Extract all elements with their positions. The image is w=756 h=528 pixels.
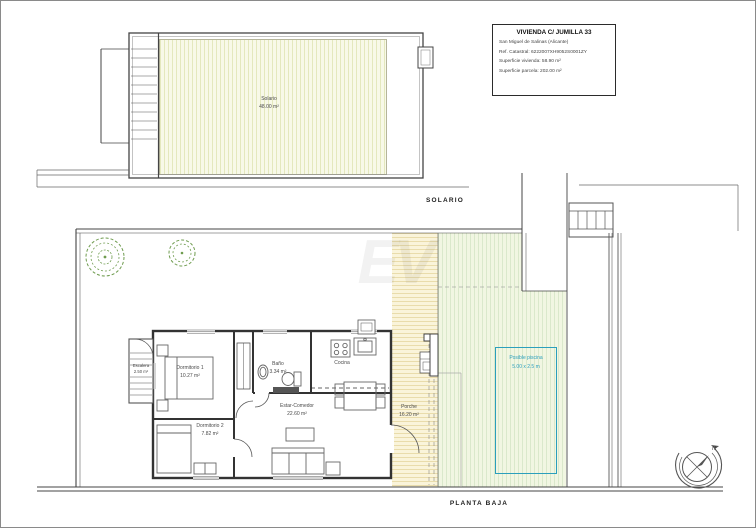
- room-label-escalera: Escalera2.50 m²: [133, 363, 149, 375]
- pool-outline: Posible piscina5.00 x 2.5 m: [495, 347, 557, 474]
- pool-label: Posible piscina5.00 x 2.5 m: [509, 354, 542, 371]
- title-block-location: San Miguel de Salinas (Alicante): [499, 40, 609, 45]
- boundary-lines: [37, 185, 738, 231]
- room-label-bano: Baño3.34 m²: [270, 361, 287, 377]
- water-heater-box: [358, 320, 375, 334]
- exterior-stairs: [569, 203, 613, 237]
- room-label-dormitorio2: Dormitorio 27.82 m²: [196, 423, 223, 439]
- room-label-estar-comedor: Estar-Comedor22.60 m²: [280, 403, 314, 419]
- compass-north-label: N: [712, 445, 716, 454]
- room-label-solario: Solario48.00 m²: [259, 96, 279, 112]
- floor-label-planta-baja: PLANTA BAJA: [450, 500, 508, 507]
- floor-label-solario: SOLARIO: [426, 197, 464, 204]
- chimney: [418, 47, 433, 68]
- title-block: VIVIENDA C/ JUMILLA 33 San Miguel de Sal…: [492, 24, 616, 96]
- solarium-plan: [37, 33, 433, 187]
- room-label-cocina: Cocina: [334, 360, 350, 368]
- title-block-plot-area: Superficie parcela: 202.00 m²: [499, 69, 609, 74]
- project-title: VIVIENDA C/ JUMILLA 33: [499, 29, 609, 36]
- plan-linework: [1, 1, 756, 528]
- tree-icon: [86, 238, 124, 276]
- solarium-stairs: [131, 49, 157, 139]
- floor-plan-sheet: VIVIENDA C/ JUMILLA 33 San Miguel de Sal…: [0, 0, 756, 528]
- room-label-porche: Porche16.20 m²: [399, 404, 419, 420]
- room-label-dormitorio1: Dormitorio 110.27 m²: [176, 365, 203, 381]
- tree-icon: [169, 240, 195, 266]
- title-block-dwelling-area: Superficie vivienda: 58.90 m²: [499, 59, 609, 64]
- title-block-cadastral-ref: Ref. Catastral: 6222007XH9052S0001ZY: [499, 50, 609, 55]
